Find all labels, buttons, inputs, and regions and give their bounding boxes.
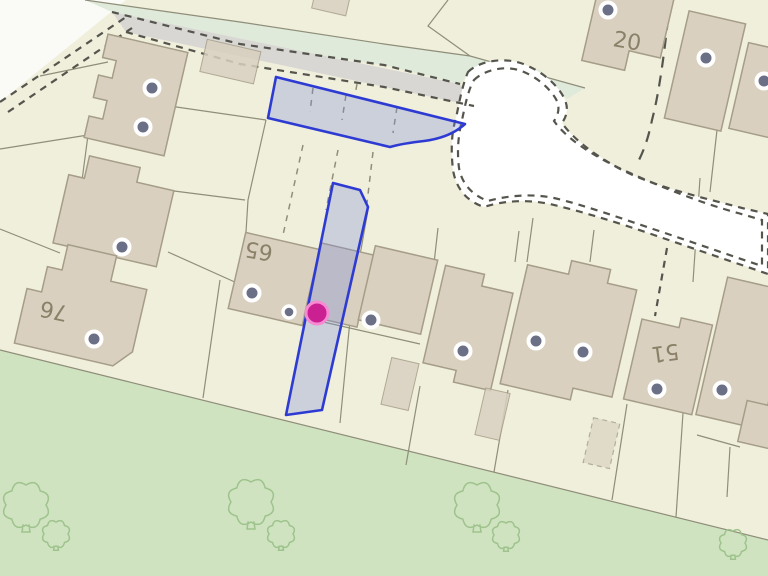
address-marker[interactable] — [456, 344, 471, 359]
address-marker[interactable] — [757, 74, 768, 89]
address-marker[interactable] — [529, 334, 544, 349]
selected-point-marker[interactable] — [306, 302, 328, 324]
selected-point-layer — [306, 302, 328, 324]
address-marker[interactable] — [145, 81, 160, 96]
house-number-label: 20 — [611, 27, 643, 56]
address-marker[interactable] — [650, 382, 665, 397]
address-marker[interactable] — [715, 383, 730, 398]
address-marker[interactable] — [283, 306, 295, 318]
address-marker[interactable] — [87, 332, 102, 347]
address-marker[interactable] — [245, 286, 260, 301]
address-marker[interactable] — [601, 3, 616, 18]
house-number-label: 65 — [243, 235, 275, 264]
address-marker[interactable] — [576, 345, 591, 360]
map-canvas[interactable]: 20657651 — [0, 0, 768, 576]
address-marker[interactable] — [364, 313, 379, 328]
map-svg: 20657651 — [0, 0, 768, 576]
address-marker[interactable] — [136, 120, 151, 135]
address-marker[interactable] — [115, 240, 130, 255]
house-number-label: 51 — [649, 338, 680, 367]
address-marker[interactable] — [699, 51, 714, 66]
